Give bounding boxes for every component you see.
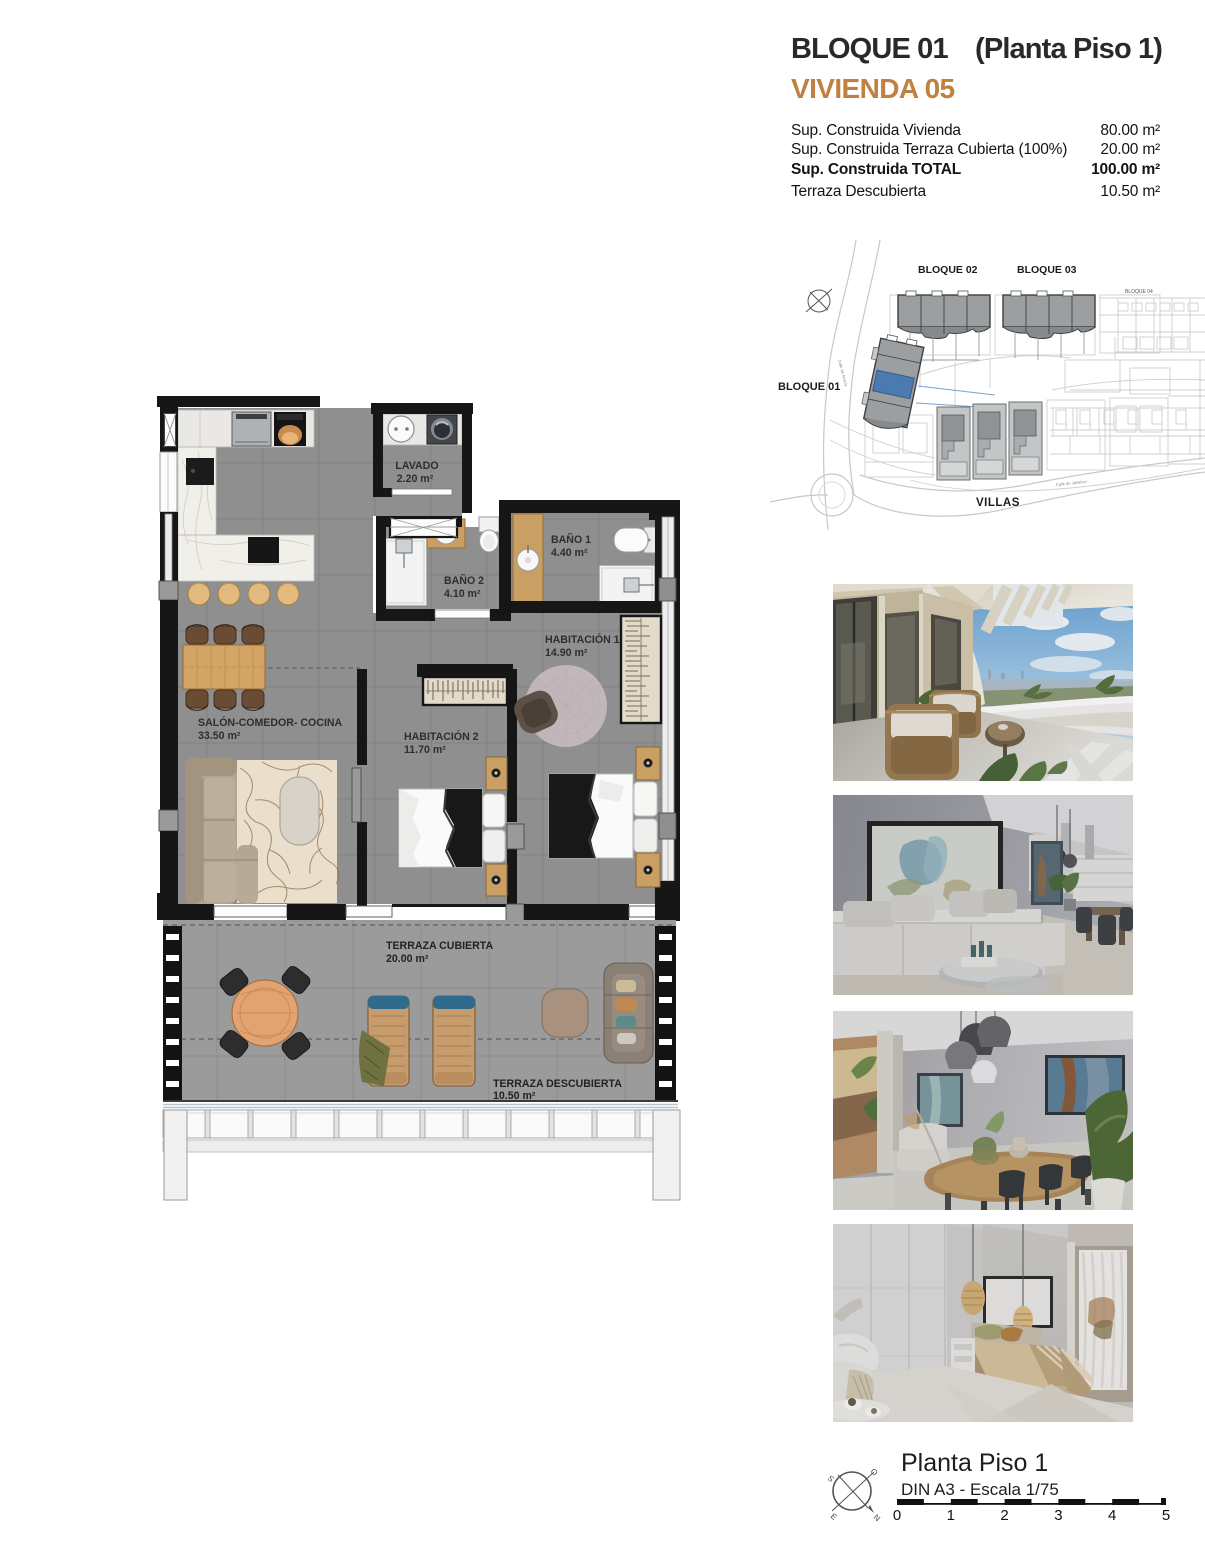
svg-text:BAÑO 2: BAÑO 2 [444, 574, 484, 587]
svg-text:33.50 m²: 33.50 m² [198, 730, 241, 742]
svg-text:5: 5 [1162, 1507, 1170, 1524]
svg-text:1: 1 [947, 1507, 955, 1524]
svg-text:4.10 m²: 4.10 m² [444, 588, 481, 600]
svg-text:LAVADO: LAVADO [395, 460, 438, 472]
svg-text:14.90 m²: 14.90 m² [545, 647, 588, 659]
svg-text:2: 2 [1000, 1507, 1008, 1524]
svg-text:BLOQUE 02: BLOQUE 02 [918, 264, 978, 276]
svg-text:TERRAZA CUBIERTA: TERRAZA CUBIERTA [386, 940, 493, 952]
svg-text:4.40 m²: 4.40 m² [551, 547, 588, 559]
svg-text:2.20 m²: 2.20 m² [397, 473, 434, 485]
svg-text:S: S [826, 1474, 836, 1484]
svg-text:20.00 m²: 20.00 m² [386, 953, 429, 965]
svg-text:BLOQUE 04: BLOQUE 04 [1125, 289, 1153, 295]
svg-text:3: 3 [1054, 1507, 1062, 1524]
svg-text:BAÑO 1: BAÑO 1 [551, 533, 591, 546]
svg-text:TERRAZA DESCUBIERTA: TERRAZA DESCUBIERTA [493, 1078, 622, 1090]
svg-text:HABITACIÓN 1: HABITACIÓN 1 [545, 633, 620, 646]
svg-text:10.50 m²: 10.50 m² [493, 1090, 536, 1102]
svg-text:Calle de Jabalcuz: Calle de Jabalcuz [1056, 479, 1088, 487]
svg-text:HABITACIÓN 2: HABITACIÓN 2 [404, 730, 479, 743]
svg-text:BLOQUE 03: BLOQUE 03 [1017, 264, 1077, 276]
svg-text:E: E [829, 1512, 839, 1522]
svg-text:SALÓN-COMEDOR- COCINA: SALÓN-COMEDOR- COCINA [198, 716, 343, 729]
svg-text:4: 4 [1108, 1507, 1116, 1524]
svg-text:N: N [872, 1513, 882, 1524]
svg-text:11.70 m²: 11.70 m² [404, 744, 446, 756]
svg-text:BLOQUE 01: BLOQUE 01 [778, 381, 840, 393]
svg-text:VILLAS: VILLAS [976, 497, 1020, 509]
svg-text:0: 0 [893, 1507, 901, 1524]
